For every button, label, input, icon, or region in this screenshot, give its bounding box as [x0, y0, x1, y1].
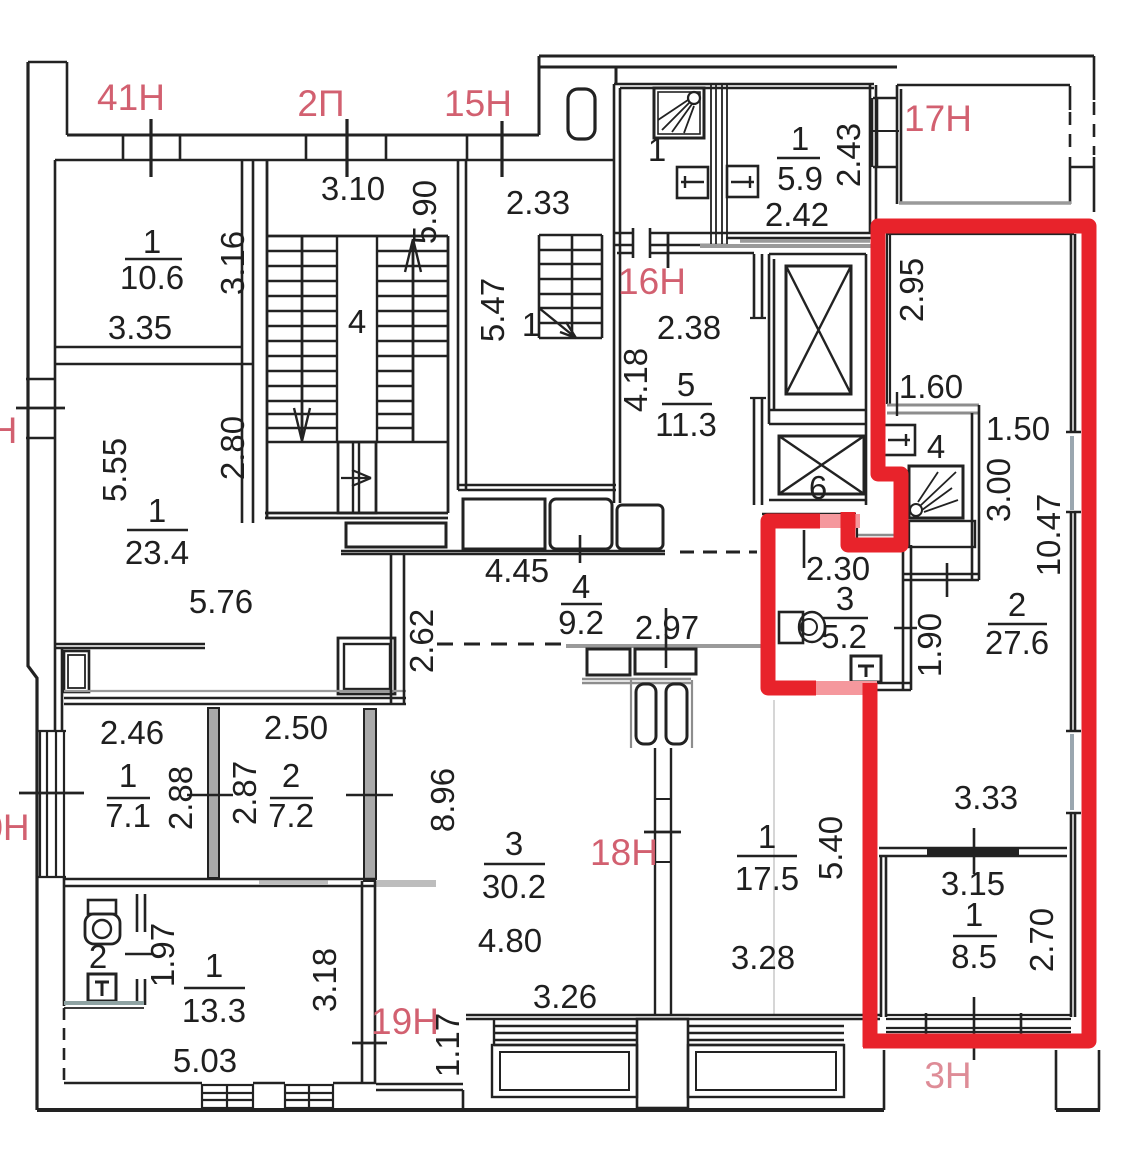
svg-text:1.60: 1.60: [899, 368, 963, 405]
svg-text:2.38: 2.38: [657, 309, 721, 346]
svg-text:16Н: 16Н: [618, 261, 686, 302]
svg-text:8.5: 8.5: [951, 938, 997, 975]
svg-text:4: 4: [927, 428, 945, 465]
svg-text:1: 1: [791, 120, 809, 157]
svg-text:7.2: 7.2: [268, 797, 314, 834]
svg-text:2.97: 2.97: [635, 609, 699, 646]
svg-text:3: 3: [836, 580, 854, 617]
svg-text:13.3: 13.3: [182, 992, 246, 1029]
svg-text:27.6: 27.6: [985, 624, 1049, 661]
svg-text:2.50: 2.50: [264, 709, 328, 746]
svg-text:1.90: 1.90: [911, 613, 948, 677]
svg-text:3.35: 3.35: [108, 309, 172, 346]
svg-text:1: 1: [648, 131, 666, 168]
svg-text:4.18: 4.18: [617, 348, 654, 412]
svg-text:1.97: 1.97: [144, 923, 181, 987]
svg-text:18Н: 18Н: [590, 832, 658, 873]
svg-text:3Н: 3Н: [924, 1055, 971, 1096]
svg-text:7.1: 7.1: [105, 797, 151, 834]
svg-text:4.45: 4.45: [485, 552, 549, 589]
svg-text:2.88: 2.88: [162, 766, 199, 830]
svg-text:1: 1: [143, 223, 161, 260]
svg-text:4: 4: [348, 303, 366, 340]
svg-text:3.18: 3.18: [306, 948, 343, 1012]
svg-text:23.4: 23.4: [125, 534, 189, 571]
svg-text:3.26: 3.26: [533, 978, 597, 1015]
svg-text:Н: Н: [0, 410, 17, 451]
svg-text:2: 2: [89, 938, 107, 975]
svg-text:5.55: 5.55: [96, 438, 133, 502]
svg-text:5.90: 5.90: [406, 180, 443, 244]
svg-text:15Н: 15Н: [444, 83, 512, 124]
svg-text:2.87: 2.87: [226, 761, 263, 825]
svg-text:17.5: 17.5: [735, 860, 799, 897]
svg-text:2.70: 2.70: [1023, 908, 1060, 972]
svg-text:5.40: 5.40: [812, 816, 849, 880]
svg-text:3.28: 3.28: [731, 939, 795, 976]
svg-text:1: 1: [205, 947, 223, 984]
svg-text:4.80: 4.80: [478, 922, 542, 959]
svg-text:10.47: 10.47: [1030, 494, 1067, 577]
svg-text:10.6: 10.6: [120, 259, 184, 296]
svg-text:4: 4: [572, 568, 590, 605]
svg-text:2.43: 2.43: [830, 123, 867, 187]
svg-text:1: 1: [119, 757, 137, 794]
svg-text:41Н: 41Н: [97, 77, 165, 118]
svg-text:3.16: 3.16: [214, 231, 251, 295]
svg-text:2.95: 2.95: [893, 258, 930, 322]
svg-text:3.10: 3.10: [321, 170, 385, 207]
svg-text:3: 3: [505, 825, 523, 862]
svg-text:2.46: 2.46: [100, 714, 164, 751]
svg-text:3.00: 3.00: [980, 458, 1017, 522]
svg-text:2.80: 2.80: [214, 416, 251, 480]
svg-text:5: 5: [677, 366, 695, 403]
svg-text:8.96: 8.96: [424, 768, 461, 832]
svg-text:2: 2: [1008, 586, 1026, 623]
svg-text:1: 1: [758, 818, 776, 855]
svg-text:5.76: 5.76: [189, 583, 253, 620]
svg-text:1.50: 1.50: [986, 410, 1050, 447]
svg-text:2.62: 2.62: [403, 609, 440, 673]
svg-text:30.2: 30.2: [482, 868, 546, 905]
svg-text:0Н: 0Н: [0, 807, 30, 848]
svg-text:17Н: 17Н: [904, 98, 972, 139]
svg-text:5.9: 5.9: [777, 160, 823, 197]
svg-text:5.03: 5.03: [173, 1042, 237, 1079]
svg-text:3.33: 3.33: [954, 779, 1018, 816]
svg-text:2: 2: [282, 757, 300, 794]
svg-text:6: 6: [809, 469, 827, 506]
svg-text:1: 1: [522, 306, 540, 343]
svg-text:2.33: 2.33: [506, 184, 570, 221]
svg-text:2.42: 2.42: [765, 196, 829, 233]
svg-text:1: 1: [148, 492, 166, 529]
svg-text:5.47: 5.47: [474, 278, 511, 342]
svg-text:9.2: 9.2: [558, 604, 604, 641]
svg-text:1: 1: [965, 896, 983, 933]
svg-text:2П: 2П: [297, 83, 344, 124]
svg-text:11.3: 11.3: [655, 406, 717, 443]
svg-text:1.17: 1.17: [429, 1013, 466, 1077]
svg-text:5.2: 5.2: [821, 618, 867, 655]
